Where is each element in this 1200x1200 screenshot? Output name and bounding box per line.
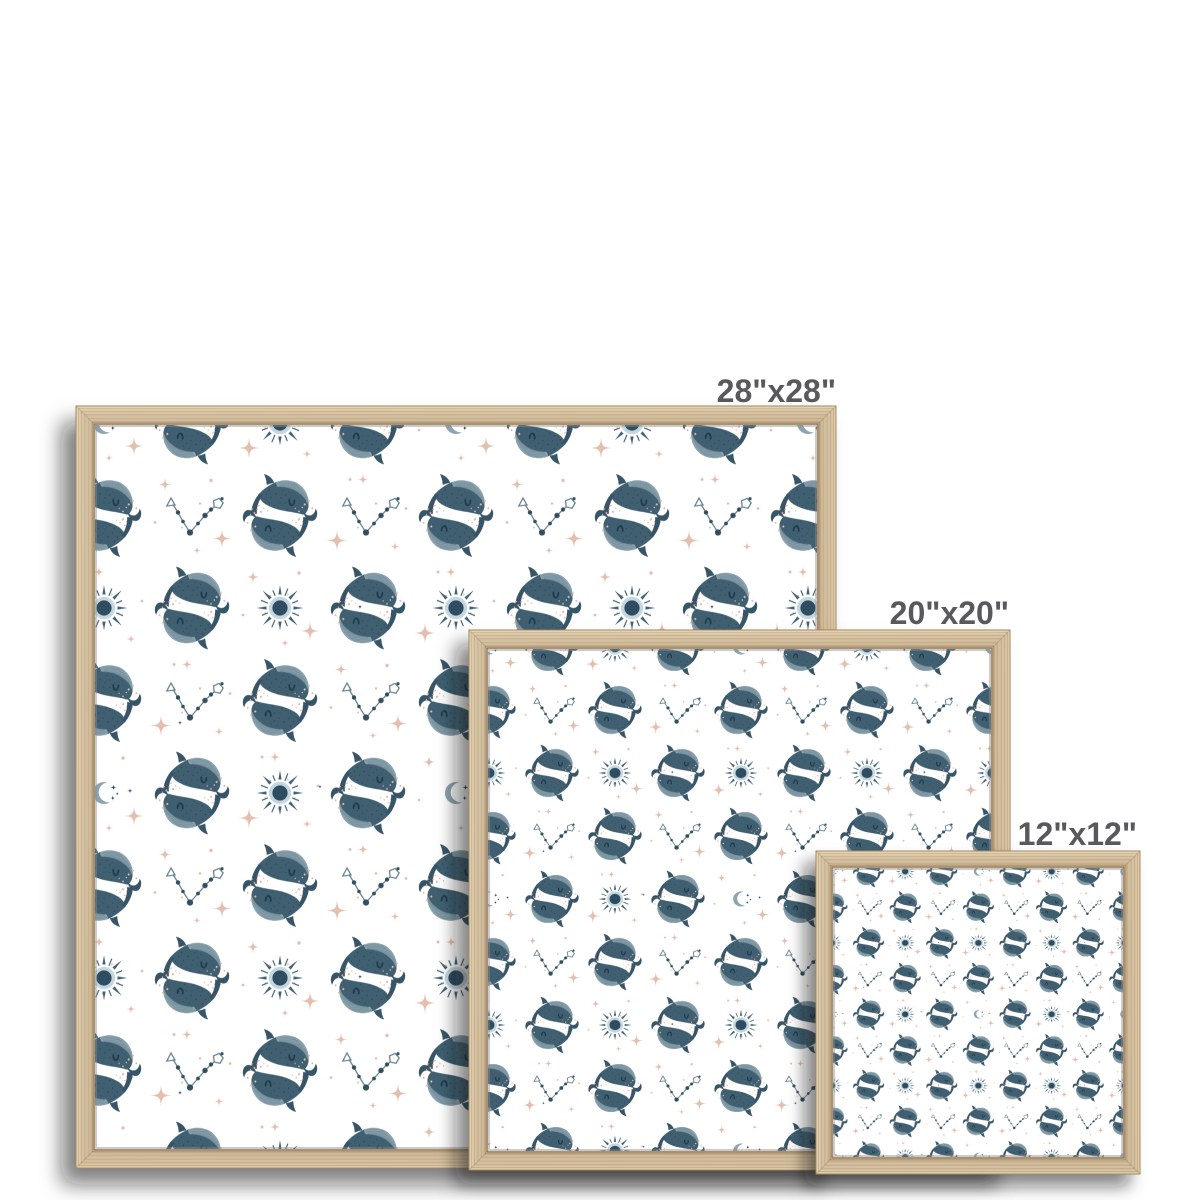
svg-text:28"x28": 28"x28" xyxy=(717,373,836,409)
svg-text:12"x12": 12"x12" xyxy=(1018,816,1137,852)
svg-text:20"x20": 20"x20" xyxy=(890,595,1009,631)
